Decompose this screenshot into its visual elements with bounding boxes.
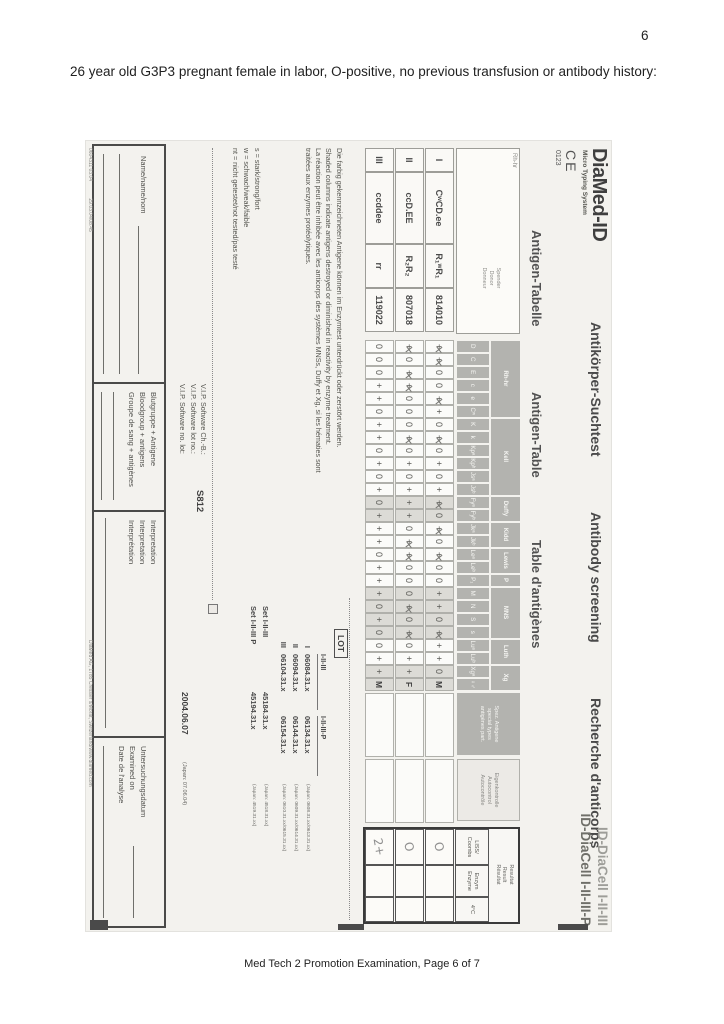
result-cell	[395, 897, 424, 922]
set-japan-note: (Japan: 4519.31.xx)	[251, 784, 256, 826]
legend-strong: s = stark/strong/fort	[251, 148, 262, 270]
set-label: Set I-II-III P	[249, 606, 258, 644]
result-cell: O	[395, 829, 424, 865]
donor-info-box: Rh-hrSpenderDonorDonneur	[456, 148, 520, 334]
dotted-separator-left	[212, 148, 213, 600]
interpretation-label-de: Interpretation	[147, 520, 158, 564]
group-header-Kidd: Kidd	[491, 523, 520, 547]
antigen-header: Cʷ	[457, 406, 489, 418]
grid-cell: 0	[395, 418, 424, 431]
grid-cell: 0	[395, 561, 424, 574]
antigen-header: C	[457, 354, 489, 366]
grid-cell: +	[425, 457, 454, 470]
grid-cell: +	[395, 509, 424, 522]
row-id: III	[365, 148, 394, 172]
antigen-header: Leᵃ	[457, 549, 489, 561]
blank-line	[119, 154, 120, 374]
grid-cell: 0	[425, 613, 454, 626]
grid-cell: 0	[395, 574, 424, 587]
expiry-date: 2004.06.07	[180, 692, 190, 735]
blank-line	[113, 392, 114, 500]
grid-cell: +	[365, 574, 394, 587]
lot-number: 06104.31.x	[279, 654, 288, 692]
blank-line	[105, 518, 106, 728]
result-cell	[425, 897, 454, 922]
scanned-form-rotated: DiaMed-ID Micro Typing System CE 0123 An…	[85, 140, 612, 932]
antigen-grid: Rh-hrSpenderDonorDonneurRh-hrKellDuffyKi…	[364, 148, 520, 924]
grid-cell: +✕	[425, 431, 454, 444]
grid-cell: +	[365, 392, 394, 405]
grid-cell: +✕	[395, 600, 424, 613]
group-header-Kell: Kell	[491, 419, 520, 495]
grid-cell: +	[365, 587, 394, 600]
handwritten-result: O	[402, 841, 417, 853]
grid-cell: +	[365, 522, 394, 535]
lot-number: 06094.31.x	[291, 654, 300, 692]
grid-cell: 0	[425, 509, 454, 522]
antigen-header: Kpᵇ	[457, 458, 489, 470]
grid-cell: 0	[365, 444, 394, 457]
grid-cell: 0	[395, 392, 424, 405]
antigen-header: Leᵇ	[457, 562, 489, 574]
group-header-Duffy: Duffy	[491, 497, 520, 521]
blank-line	[103, 154, 104, 374]
ce-number: 0123	[554, 150, 561, 166]
grid-cell: +	[365, 665, 394, 678]
results-header: ResultatResultRésultat	[490, 829, 518, 920]
set-lot-number: 45194.31.x	[249, 692, 258, 730]
result-cell	[365, 897, 394, 922]
lot-japan-note: (Japan: 0608.31.xx/0613.31.xx)	[305, 784, 310, 851]
lot-japan-note: (Japan: 0609.31.xx/0614.31.xx)	[293, 784, 298, 851]
question-text: 26 year old G3P3 pregnant female in labo…	[70, 62, 670, 82]
note-german: Die farbig gekennzeichneten Antigene kön…	[335, 148, 345, 490]
group-header-Luth: Luth	[491, 640, 520, 664]
handwritten-result: 2+	[371, 837, 388, 857]
row-id: I	[425, 148, 454, 172]
grid-cell: 0	[395, 353, 424, 366]
set-lot-number: 45184.31.x	[261, 692, 270, 730]
grid-cell: +✕	[395, 431, 424, 444]
crop-mark	[90, 920, 108, 930]
grid-cell: +✕	[395, 626, 424, 639]
grid-cell: 0	[365, 470, 394, 483]
results-col-header: 4°C	[455, 897, 489, 922]
grid-cell: 0	[365, 405, 394, 418]
grid-cell: 0	[425, 444, 454, 457]
patient-fields-box: Name/name/nom Blutgruppe + Antigene Bloo…	[92, 144, 166, 928]
set-label: Set I-II-III	[261, 606, 270, 637]
grid-cell: +✕	[425, 626, 454, 639]
grid-cell: +	[425, 587, 454, 600]
page-number: 6	[641, 28, 649, 43]
grid-cell: +✕	[395, 379, 424, 392]
blank-line	[101, 392, 102, 500]
grid-cell: 0	[365, 353, 394, 366]
grid-cell: 0	[395, 587, 424, 600]
expiry-date-japan: (Japan: 07.06.04)	[181, 762, 187, 805]
antigen-header: Luᵇ	[457, 653, 489, 665]
grid-cell: +✕	[425, 392, 454, 405]
antigen-header: E	[457, 367, 489, 379]
group-header-Lewis: Lewis	[491, 549, 520, 573]
antigen-header: ♀♂	[457, 679, 489, 691]
grid-cell: 0	[425, 379, 454, 392]
blank-line	[133, 846, 134, 918]
antigen-header: K	[457, 419, 489, 431]
antigen-header: c	[457, 380, 489, 392]
subtitle-en: Antigen-Table	[529, 392, 544, 478]
grid-cell: M	[425, 678, 454, 691]
grid-cell: 0	[395, 470, 424, 483]
legend-nt: nt = nicht getestet/not tested/pas testé	[230, 148, 241, 270]
print-code-2: 29.03.04/08.45	[87, 198, 93, 231]
grid-cell: 0	[365, 340, 394, 353]
print-codes: 0604311 03.04 29.03.04/08.45	[87, 148, 93, 232]
name-blank-line	[138, 226, 139, 374]
brand-tagline: Micro Typing System	[581, 150, 588, 215]
antigen-header: k	[457, 432, 489, 444]
lot-row-id: II	[291, 634, 300, 648]
special-antigen-cell	[365, 693, 394, 757]
section-divider	[94, 736, 164, 738]
grid-cell: +✕	[395, 340, 424, 353]
row-rh: rr	[365, 244, 394, 288]
grid-cell: +✕	[425, 340, 454, 353]
grid-cell: 0	[425, 574, 454, 587]
grid-cell: +✕	[395, 535, 424, 548]
autocontrol-header: EigenkontrolleAutocontrolAutocontrôle	[457, 759, 520, 821]
antigen-header: Kpᵃ	[457, 445, 489, 457]
lot-number: 06154.31.x	[279, 716, 288, 754]
vip-software-lot-value: S812	[194, 490, 205, 512]
legend-weak: w = schwach/weak/faible	[240, 148, 251, 270]
grid-cell: +	[395, 496, 424, 509]
antigen-header: N	[457, 601, 489, 613]
grid-cell: +	[365, 483, 394, 496]
print-code-1: 0604311 03.04	[87, 148, 93, 181]
grid-cell: 0	[365, 626, 394, 639]
autocontrol-cell	[365, 759, 394, 823]
antigen-header: Jsᵇ	[457, 484, 489, 496]
antigen-header: e	[457, 393, 489, 405]
donor-label: SpenderDonorDonneur	[480, 245, 501, 311]
subtitle-fr: Table d'antigènes	[529, 540, 544, 648]
grid-cell: 0	[395, 522, 424, 535]
result-cell	[365, 865, 394, 897]
note-english: Shaded columns indicate antigens destroy…	[324, 148, 334, 490]
grid-cell: +	[425, 652, 454, 665]
interpretation-label-en: Interpretation	[136, 520, 147, 564]
grid-cell: 0	[395, 613, 424, 626]
product-title-2: ID-DiaCell I-II-III-P	[578, 813, 593, 926]
grid-cell: +✕	[395, 548, 424, 561]
name-field-label: Name/name/nom	[137, 156, 148, 214]
grid-cell: 0	[425, 366, 454, 379]
vip-software-labels: V.I.P. Software Ch.-B.: V.I.P. Software …	[177, 384, 208, 455]
vip-line-fr: V.I.P. Software no. lot:	[177, 384, 187, 455]
subtitle-de: Antigen-Tabelle	[529, 230, 544, 327]
title-en: Antibody screening	[588, 512, 604, 643]
bloodgroup-label-fr: Groupe de sang + antigènes	[125, 392, 136, 487]
grid-cell: 0	[425, 561, 454, 574]
grid-cell: +✕	[425, 496, 454, 509]
grid-cell: 0	[425, 665, 454, 678]
lot-col2-header: I-II-III-P	[317, 716, 326, 776]
result-cell: 2+	[365, 829, 394, 865]
row-donor: 119022	[365, 288, 394, 332]
grid-cell: 0	[365, 600, 394, 613]
grid-cell: 0	[365, 496, 394, 509]
grading-legend: s = stark/strong/fort w = schwach/weak/f…	[230, 148, 262, 270]
diamed-logo: DiaMed-ID	[587, 148, 610, 241]
group-header-MNS: MNS	[491, 588, 520, 638]
row-phenotype: CʷCD.ee	[425, 172, 454, 244]
grid-cell: +	[365, 457, 394, 470]
grid-cell: +	[425, 483, 454, 496]
grid-cell: 0	[365, 548, 394, 561]
enzyme-notes: Die farbig gekennzeichneten Antigene kön…	[303, 148, 344, 490]
grid-cell: 0	[425, 535, 454, 548]
small-box-mark	[208, 604, 218, 614]
page-footer: Med Tech 2 Promotion Examination, Page 6…	[0, 958, 724, 970]
grid-cell: +✕	[425, 353, 454, 366]
section-divider	[94, 382, 164, 384]
group-header-P: P	[491, 575, 520, 586]
title-de: Antikörper-Suchtest	[588, 322, 604, 457]
antigen-header: S	[457, 614, 489, 626]
row-donor: 807018	[395, 288, 424, 332]
result-cell	[395, 865, 424, 897]
antigen-header: Fyᵇ	[457, 510, 489, 522]
antigen-header: Jkᵃ	[457, 523, 489, 535]
autocontrol-cell	[395, 759, 424, 823]
lot-label: LOT	[334, 629, 348, 658]
lot-row-id: I	[303, 634, 312, 648]
grid-cell: +	[365, 431, 394, 444]
grid-cell: +	[395, 483, 424, 496]
lot-number: 06084.31.x	[303, 654, 312, 692]
grid-cell: 0	[425, 418, 454, 431]
bloodgroup-label-de: Blutgruppe + Antigene	[147, 392, 158, 466]
antigen-header: Jkᵇ	[457, 536, 489, 548]
vip-line-de: V.I.P. Software Ch.-B.:	[198, 384, 208, 455]
grid-cell: 0	[365, 639, 394, 652]
grid-cell: +✕	[395, 366, 424, 379]
company-address: DiaMed AG, 1785 Cressier s/Morat, Switze…	[87, 640, 93, 787]
lot-col1-header: I-II-III	[317, 654, 326, 710]
grid-cell: +	[365, 535, 394, 548]
note-french: La réaction peut être inhibée avec les a…	[304, 148, 323, 490]
lot-number: 06134.31.x	[303, 716, 312, 754]
grid-cell: +✕	[425, 548, 454, 561]
crop-mark	[338, 924, 364, 930]
row-id: II	[395, 148, 424, 172]
antigen-header: s	[457, 627, 489, 639]
special-antigen-cell	[425, 693, 454, 757]
dotted-separator-right	[349, 598, 350, 920]
interpretation-label-fr: Interprétation	[125, 520, 136, 564]
grid-cell: 0	[395, 405, 424, 418]
exam-page: 6 26 year old G3P3 pregnant female in la…	[0, 0, 724, 1024]
lot-number: 06144.31.x	[291, 716, 300, 754]
vip-line-en: V.I.P. Software lot no.:	[187, 384, 197, 455]
rh-hr-label: Rh-hr	[511, 153, 517, 168]
antigen-header: P₁	[457, 575, 489, 587]
grid-cell: +	[365, 509, 394, 522]
grid-cell: +	[365, 613, 394, 626]
grid-cell: +✕	[425, 522, 454, 535]
grid-cell: 0	[365, 366, 394, 379]
special-antigen-header: Spez. Antigenespecial typesantigènes par…	[457, 693, 520, 755]
results-col-header: EnzymEnzyme	[455, 865, 489, 897]
special-antigen-cell	[395, 693, 424, 757]
result-cell	[425, 865, 454, 897]
antigen-header: Jsᵃ	[457, 471, 489, 483]
row-phenotype: ccD.EE	[395, 172, 424, 244]
row-phenotype: ccddee	[365, 172, 394, 244]
antigen-header: Fyᵃ	[457, 497, 489, 509]
grid-cell: +	[425, 600, 454, 613]
grid-cell: 0	[395, 444, 424, 457]
ce-mark: CE	[563, 150, 579, 173]
grid-cell: F	[395, 678, 424, 691]
grid-cell: 0	[395, 639, 424, 652]
grid-cell: +	[425, 405, 454, 418]
row-rh: R₁ʷR₁	[425, 244, 454, 288]
antigen-header: Luᵃ	[457, 640, 489, 652]
group-header-Xg: Xg	[491, 666, 520, 690]
antigen-header: Xgᵃ	[457, 666, 489, 678]
antigen-header: M	[457, 588, 489, 600]
antigen-header: D	[457, 341, 489, 353]
grid-cell: +	[395, 457, 424, 470]
set-japan-note: (Japan: 4518.31.xx)	[263, 784, 268, 826]
bloodgroup-label-en: Bloodgroup + antigens	[136, 392, 147, 467]
grid-cell: +	[365, 418, 394, 431]
grid-cell: 0	[425, 470, 454, 483]
examined-label-de: Untersuchungsdatum	[137, 746, 148, 817]
group-header-Rh-hr: Rh-hr	[491, 341, 520, 417]
examined-label-en: Examined on	[126, 746, 137, 790]
blank-line	[103, 746, 104, 918]
examined-label-fr: Date de l'analyse	[115, 746, 126, 803]
lot-row-id: III	[279, 634, 288, 648]
grid-cell: +	[425, 639, 454, 652]
row-donor: 814010	[425, 288, 454, 332]
lot-japan-note: (Japan: 0610.31.xx/0615.31.xx)	[281, 784, 286, 851]
product-title-1: ID-DiaCell I-II-III	[595, 827, 610, 926]
section-divider	[94, 510, 164, 512]
grid-cell: +	[365, 561, 394, 574]
autocontrol-cell	[425, 759, 454, 823]
result-cell: O	[425, 829, 454, 865]
diamed-worksheet: DiaMed-ID Micro Typing System CE 0123 An…	[85, 140, 612, 932]
results-col-header: LISS/Coombs	[455, 829, 489, 865]
grid-cell: M	[365, 678, 394, 691]
grid-cell: +	[395, 665, 424, 678]
row-rh: R₂R₂	[395, 244, 424, 288]
grid-cell: +	[395, 652, 424, 665]
handwritten-result: O	[432, 841, 447, 853]
crop-mark	[558, 924, 588, 930]
grid-cell: +	[365, 379, 394, 392]
grid-cell: +	[365, 652, 394, 665]
